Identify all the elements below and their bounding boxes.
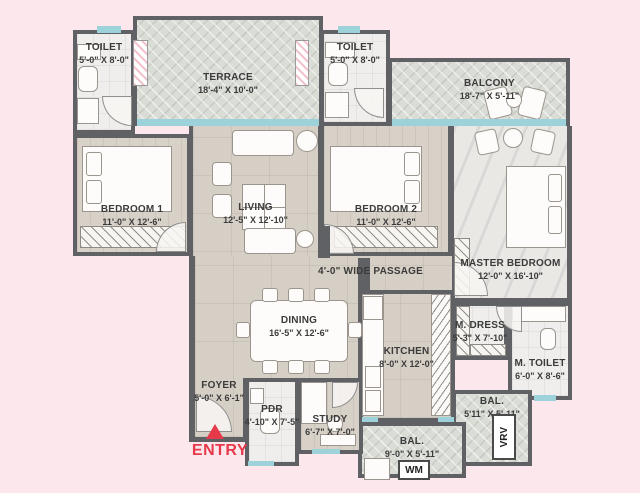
window-marker — [338, 26, 360, 33]
room-label: DINING 16'-5" X 12'-6" — [269, 315, 329, 339]
sofa-icon — [232, 130, 294, 156]
sofa-icon — [244, 228, 296, 254]
room-label: STUDY 6'-7" X 7'-0" — [305, 414, 355, 438]
room-label: LIVING 12'-5" X 12'-10" — [223, 202, 288, 226]
window-marker — [312, 449, 340, 454]
chair-icon — [262, 288, 278, 302]
entry-label: ENTRY — [190, 442, 250, 460]
washing-machine-label: WM — [398, 460, 430, 480]
chair-icon — [314, 288, 330, 302]
window-marker — [392, 119, 566, 126]
window-marker — [137, 119, 319, 126]
room-label: KITCHEN 8'-0" X 12'-0" — [379, 346, 434, 370]
basin-icon — [364, 458, 390, 480]
chair-icon — [314, 360, 330, 374]
pillow-icon — [404, 152, 420, 176]
room-label: BAL. 9'-0" X 5'-11" — [385, 436, 439, 460]
side-table-icon — [503, 128, 523, 148]
armchair-icon — [212, 162, 232, 186]
wc-icon — [78, 66, 98, 92]
shower-icon — [77, 98, 99, 124]
wc-icon — [540, 328, 556, 350]
chair-icon — [288, 288, 304, 302]
window-marker — [438, 417, 454, 422]
chair-icon — [262, 360, 278, 374]
wall-segment — [318, 226, 330, 258]
room-label: TOILET 5'-0" X 8'-0" — [330, 42, 380, 66]
sink-icon — [365, 390, 381, 412]
dining-table-icon: DINING 16'-5" X 12'-6" — [250, 300, 348, 362]
chair-icon — [348, 322, 362, 338]
pillow-icon — [548, 206, 562, 234]
wardrobe-icon — [470, 344, 506, 356]
chair-icon — [288, 360, 304, 374]
plant-icon — [296, 230, 314, 248]
floor-plan: TERRACE 18'-4" X 10'-0" TOILET 5'-0" X 8… — [0, 0, 640, 493]
pillar-icon — [133, 40, 148, 86]
window-marker — [248, 461, 274, 466]
room-label: MASTER BEDROOM 12'-0" X 16'-10" — [460, 258, 560, 282]
room-label: M. DRESS 5'-3" X 7'-10" — [453, 320, 508, 344]
room-label: TOILET 5'-0" X 8'-0" — [79, 42, 129, 66]
kitchen-shelf-icon — [431, 294, 451, 416]
window-marker — [97, 26, 121, 33]
fridge-icon — [363, 296, 383, 320]
room-label: M. TOILET 6'-0" X 8'-6" — [514, 358, 565, 382]
passage-label: 4'-0" WIDE PASSAGE — [318, 266, 423, 279]
pillow-icon — [86, 152, 102, 176]
room-label: BALCONY 18'-7" X 5'-11" — [460, 78, 519, 102]
window-marker — [362, 417, 378, 422]
side-table-icon — [296, 130, 318, 152]
room-label: BEDROOM 1 11'-0" X 12'-6" — [101, 204, 163, 228]
chair-icon — [236, 322, 250, 338]
room-label: PDR 4'-10" X 7'-5" — [245, 404, 300, 428]
pillar-icon — [295, 40, 309, 86]
entry-arrow-icon — [206, 424, 224, 439]
vrv-unit-label: VRV — [492, 414, 516, 460]
basin-icon — [250, 388, 264, 404]
room-label: TERRACE 18'-4" X 10'-0" — [198, 72, 258, 96]
shower-icon — [325, 92, 349, 118]
room-label: BEDROOM 2 11'-0" X 12'-6" — [355, 204, 417, 228]
room-label: FOYER 5'-0" X 6'-1" — [194, 380, 244, 404]
window-marker — [534, 395, 556, 401]
pillow-icon — [404, 180, 420, 204]
pillow-icon — [548, 174, 562, 202]
pillow-icon — [86, 180, 102, 204]
armchair-icon — [474, 128, 501, 156]
